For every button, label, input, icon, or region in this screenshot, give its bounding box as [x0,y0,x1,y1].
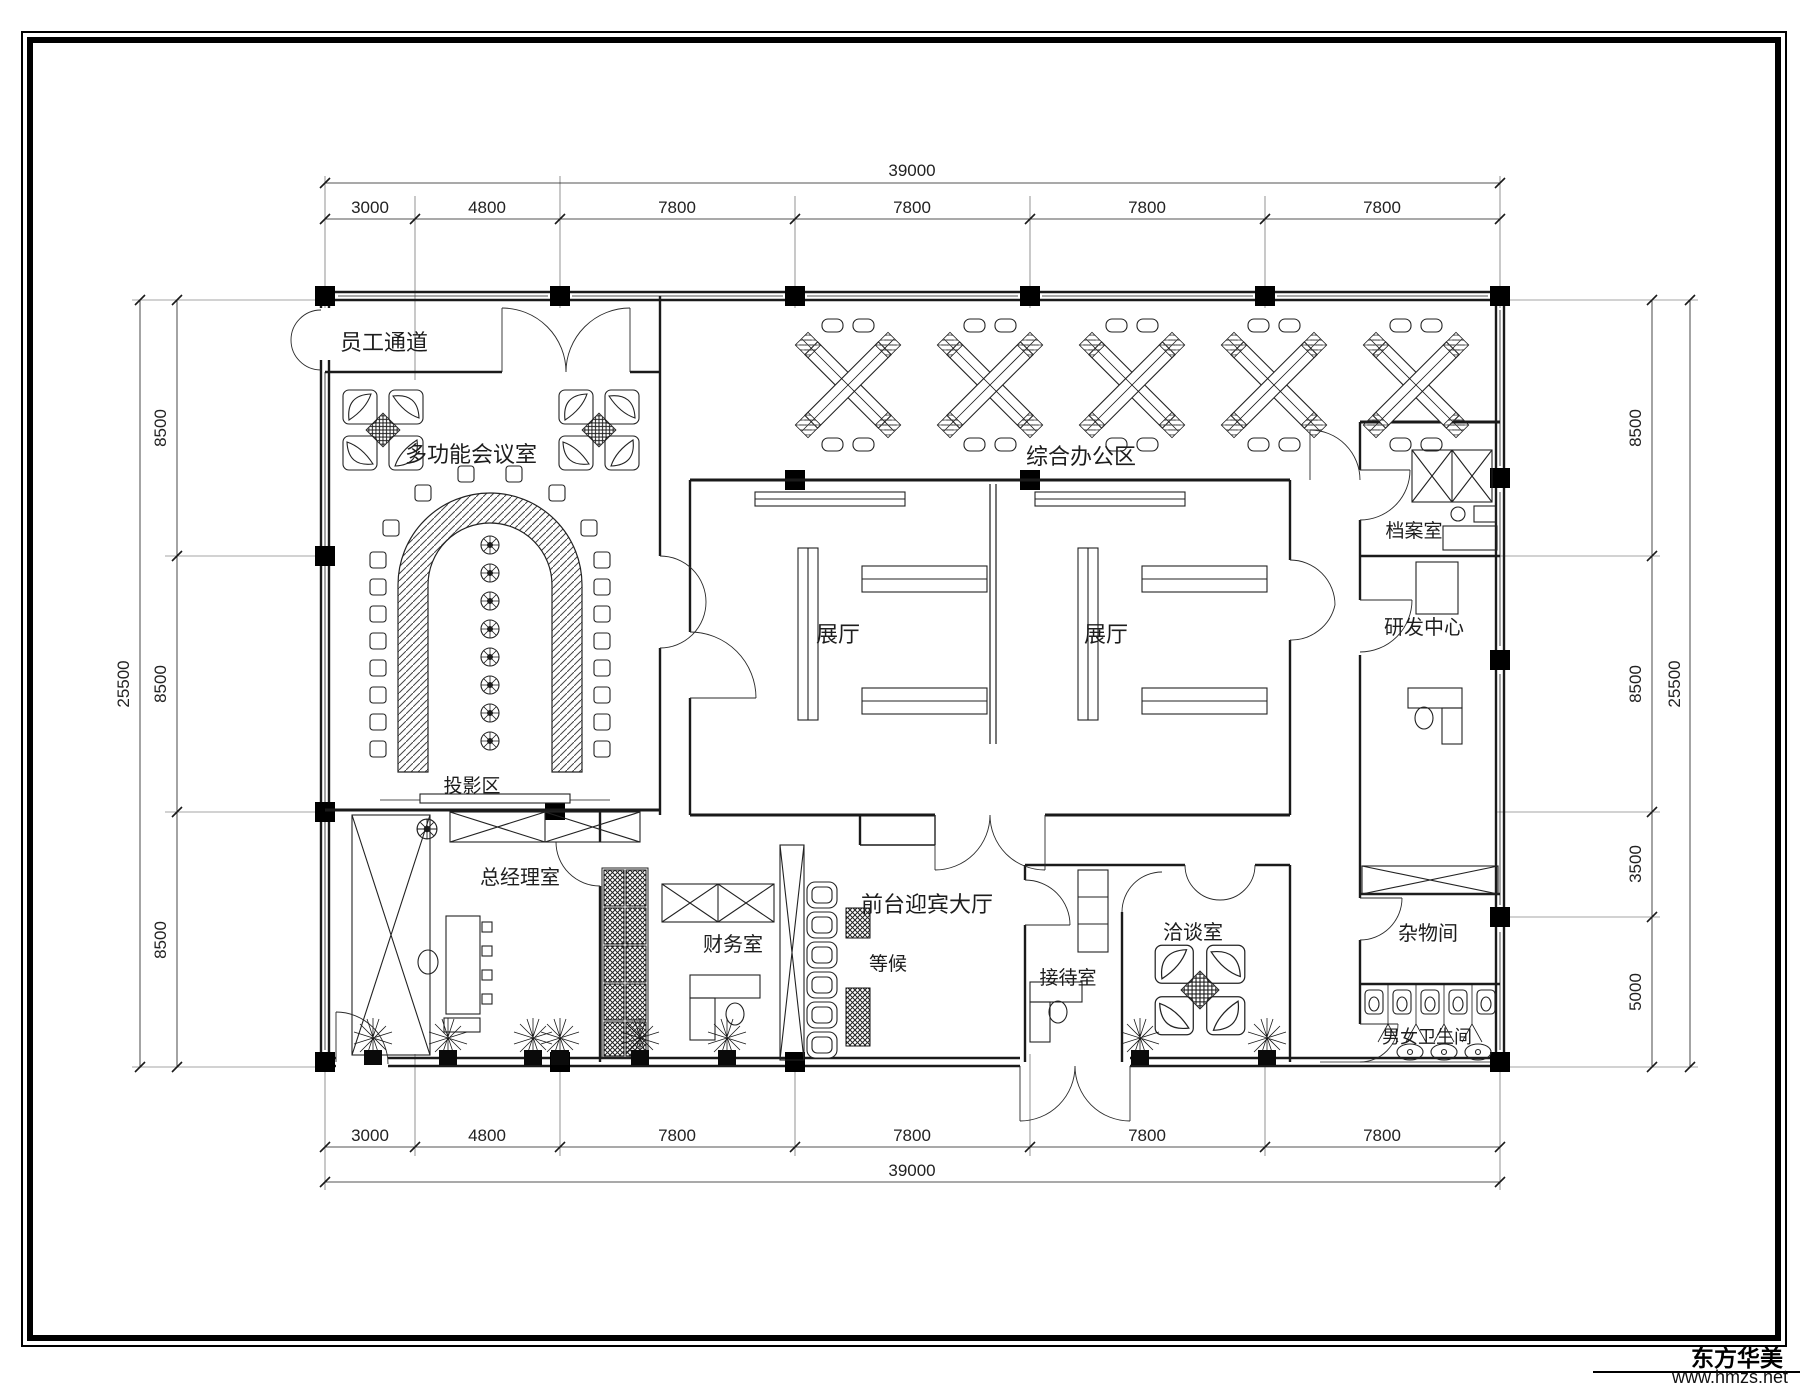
dim-bottom-total: 39000 [888,1161,935,1180]
room-label-exhibition-right: 展厅 [1084,622,1128,647]
dim-right-seg-4: 5000 [1626,973,1645,1011]
decor-column-strip [602,868,648,1058]
dim-right-seg-2: 8500 [1626,665,1645,703]
meeting-cabinet [450,812,640,842]
dim-top-seg-4: 7800 [893,198,931,217]
restroom-fixtures [1365,984,1495,1060]
room-label-staff-corridor: 员工通道 [340,330,428,355]
dim-left-seg-1: 8500 [151,409,170,447]
exhibition-fixtures [755,492,1267,720]
plant-icon [354,1018,392,1065]
room-label-restrooms: 男女卫生间 [1382,1027,1472,1047]
dim-right-total: 25500 [1665,660,1684,707]
dim-left-seg-3: 8500 [151,921,170,959]
room-label-utility: 杂物间 [1398,922,1458,945]
room-label-rnd: 研发中心 [1384,616,1464,639]
drawing-sheet: 39000 3000 4800 7800 7800 7800 7800 3900… [0,0,1801,1384]
room-label-office: 综合办公区 [1026,444,1136,469]
room-label-gm: 总经理室 [480,866,560,889]
dim-bottom-seg-4: 7800 [893,1126,931,1145]
window-glazing [325,296,1500,1062]
room-label-archive: 档案室 [1385,520,1442,542]
lounge-cluster [559,390,639,470]
dim-bottom-seg-2: 4800 [468,1126,506,1145]
dim-top-total: 39000 [888,161,935,180]
dim-right-seg-3: 3500 [1626,845,1645,883]
interior-walls [325,296,1500,1062]
dim-top-seg-3: 7800 [658,198,696,217]
dim-left-total: 25500 [114,660,133,707]
room-label-lobby: 前台迎宾大厅 [861,892,993,917]
room-label-reception: 接待室 [1039,967,1096,989]
dim-left-seg-2: 8500 [151,665,170,703]
room-label-negotiation: 洽谈室 [1163,921,1223,944]
dim-bottom-seg-6: 7800 [1363,1126,1401,1145]
sheet-frame [22,32,1786,1346]
dim-bottom-seg-5: 7800 [1128,1126,1166,1145]
dim-top-seg-1: 3000 [351,198,389,217]
utility-closet [1362,866,1498,894]
teacup-icon [1451,507,1465,521]
room-label-meeting: 多功能会议室 [405,442,537,467]
structural-columns [315,286,1510,1072]
dim-top-seg-2: 4800 [468,198,506,217]
dim-top-seg-5: 7800 [1128,198,1166,217]
dim-bottom-seg-1: 3000 [351,1126,389,1145]
dim-top-seg-6: 7800 [1363,198,1401,217]
watermark: 东方华美 www.hmzs.net [1593,1345,1800,1384]
exterior-walls [321,292,1504,1066]
office-workstations [795,319,1468,451]
dim-bottom-seg-3: 7800 [658,1126,696,1145]
dim-right-seg-1: 8500 [1626,409,1645,447]
reception-furniture [1030,870,1108,1042]
room-label-exhibition-left: 展厅 [816,622,860,647]
room-label-waiting: 等候 [869,953,907,975]
room-label-projection: 投影区 [443,775,500,797]
negotiation-lounge [1155,945,1245,1035]
rnd-furniture [1408,562,1462,744]
floor-plan-canvas: 39000 3000 4800 7800 7800 7800 7800 3900… [0,0,1801,1384]
watermark-website: www.hmzs.net [1671,1367,1788,1384]
room-label-finance: 财务室 [703,933,763,956]
